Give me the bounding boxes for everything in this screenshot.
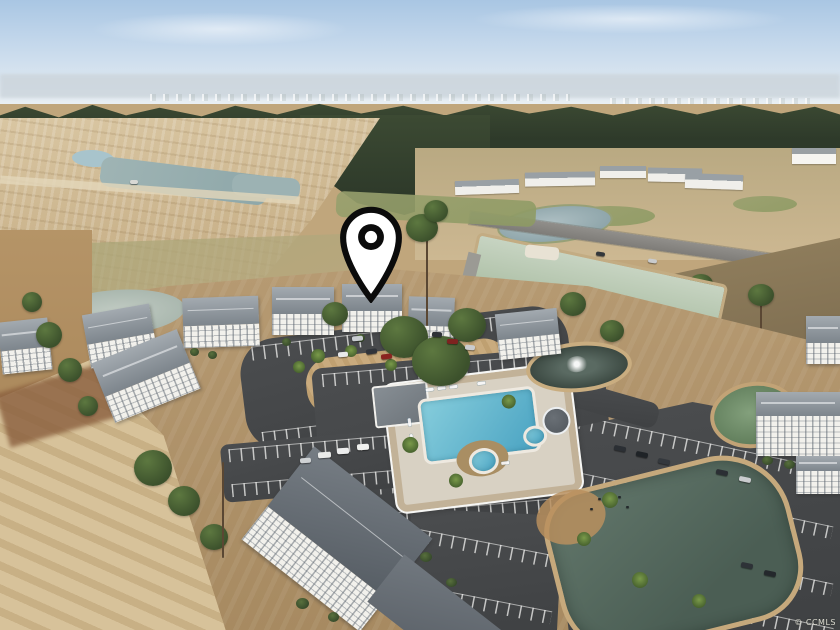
aerial-photo: © CCMLS: [0, 0, 840, 630]
car: [447, 339, 458, 345]
shrub: [282, 338, 291, 346]
pine-canopy: [424, 200, 448, 222]
distant-clubhouse: [792, 148, 836, 164]
distant-condo-building: [600, 166, 646, 178]
roof: [806, 316, 840, 343]
palm-tree: [602, 492, 618, 508]
palm-tree: [311, 349, 325, 363]
car: [352, 336, 363, 342]
parking-stalls: [415, 529, 555, 568]
shrub: [762, 456, 773, 465]
construction-vehicle: [130, 180, 138, 184]
tree: [322, 302, 348, 326]
tree: [560, 292, 586, 316]
car: [300, 458, 311, 464]
car: [432, 332, 442, 337]
oak-tree: [412, 336, 470, 386]
distant-suburb-buildings: [610, 98, 810, 104]
condo-building: [756, 392, 840, 456]
location-pin-icon: [337, 203, 405, 303]
shrub: [328, 612, 339, 622]
distant-condo-building: [685, 173, 743, 190]
car: [465, 345, 475, 351]
condo-building: [495, 308, 561, 360]
tree: [58, 358, 82, 382]
shrub: [296, 598, 309, 609]
palm-tree: [632, 572, 648, 588]
distant-condo-building: [525, 171, 595, 186]
palm-tree: [385, 359, 397, 371]
roof: [182, 296, 259, 327]
palm-tree: [577, 532, 591, 546]
tree: [36, 322, 62, 348]
car: [648, 258, 657, 263]
duck: [618, 496, 621, 498]
oak-tree: [448, 308, 486, 342]
duck: [626, 506, 629, 508]
tree: [168, 486, 200, 516]
roof: [796, 456, 840, 471]
shrub: [420, 552, 432, 562]
distant-condo-building: [455, 179, 519, 195]
cloud: [470, 4, 790, 34]
golf-green: [733, 196, 797, 212]
pine-trunk: [222, 462, 224, 558]
tree: [134, 450, 172, 486]
car: [338, 352, 348, 358]
shrub: [190, 348, 199, 356]
watermark: © CCMLS: [794, 618, 836, 627]
shrub: [208, 351, 217, 359]
tree: [22, 292, 42, 312]
wall: [756, 416, 840, 456]
distant-suburb-buildings: [150, 94, 570, 101]
palm-tree: [293, 361, 305, 373]
cloud: [90, 12, 350, 46]
tree: [78, 396, 98, 416]
van: [318, 452, 331, 459]
palm-tree: [692, 594, 706, 608]
condo-building: [182, 296, 260, 349]
shrub: [446, 578, 457, 587]
duck: [590, 508, 593, 510]
tree: [600, 320, 624, 342]
wall: [796, 471, 840, 494]
condo-building: [796, 456, 840, 494]
duck: [598, 498, 601, 500]
condo-building: [806, 316, 840, 364]
van: [357, 444, 369, 451]
fountain-spray: [565, 355, 588, 373]
van: [337, 448, 349, 455]
pine-canopy: [748, 284, 774, 306]
wall: [806, 343, 840, 364]
pine-trunk: [426, 238, 428, 326]
shrub: [784, 460, 795, 469]
roof: [756, 392, 840, 416]
wall: [183, 324, 260, 349]
